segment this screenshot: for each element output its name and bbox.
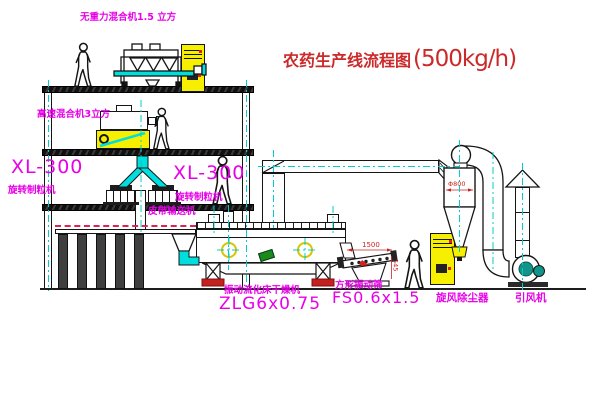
label-gravity-mixer: 无重力混合机1.5 立方 <box>80 13 176 23</box>
dim-screen-length: 1500 <box>362 242 380 249</box>
label-dryer-model: ZLG6x0.75 <box>219 296 321 313</box>
label-granulator-left-model: XL-300 <box>11 158 83 177</box>
title-text: 农药生产线流程图 <box>283 47 411 71</box>
fan-impeller <box>519 262 533 276</box>
label-fan: 引风机 <box>515 293 547 304</box>
label-granulator-center-model: XL-300 <box>173 164 245 183</box>
label-granulator-left-name: 旋转制粒机 <box>8 186 56 196</box>
dryer-red-foot <box>202 279 224 286</box>
y-branch-pipe <box>118 156 168 187</box>
diagram-title: 农药生产线流程图 (500kg/h) <box>283 46 516 72</box>
dim-screen-height: 545 <box>392 259 399 271</box>
dryer-red-foot <box>312 279 334 286</box>
screen-inlet-chute <box>340 243 355 258</box>
conveyor-discharge-elbow <box>179 251 199 265</box>
worker-figure-ground <box>405 241 423 288</box>
label-cyclone: 旋风除尘器 <box>436 293 489 304</box>
fan-base <box>508 282 548 287</box>
flow-diagram-canvas: 农药生产线流程图 (500kg/h) 无重力混合机1.5 立方 高速混合机3立方… <box>0 0 600 403</box>
gravity-mixer-machine <box>114 44 206 86</box>
fan-motor <box>534 266 545 277</box>
worker-figure-top-floor <box>75 43 91 86</box>
conveyor-discharge-hopper <box>172 234 196 251</box>
dim-cyclone-diameter: Φ800 <box>448 181 466 188</box>
label-belt-conveyor: 皮带输送机 <box>148 207 196 217</box>
mixer-stand-brace <box>100 133 145 146</box>
induced-draft-fan <box>508 256 548 288</box>
label-high-speed-mixer: 高速混合机3立方 <box>37 110 110 120</box>
cyclone-top-outlet-circle <box>452 146 471 165</box>
label-screen-model: FS0.6x1.5 <box>332 290 420 306</box>
title-capacity: (500kg/h) <box>413 46 516 72</box>
label-granulator-center-name: 旋转制粒机 <box>175 193 223 203</box>
worker-figure-second-floor <box>154 108 169 149</box>
pipe-elbow-to-fan <box>483 250 509 277</box>
